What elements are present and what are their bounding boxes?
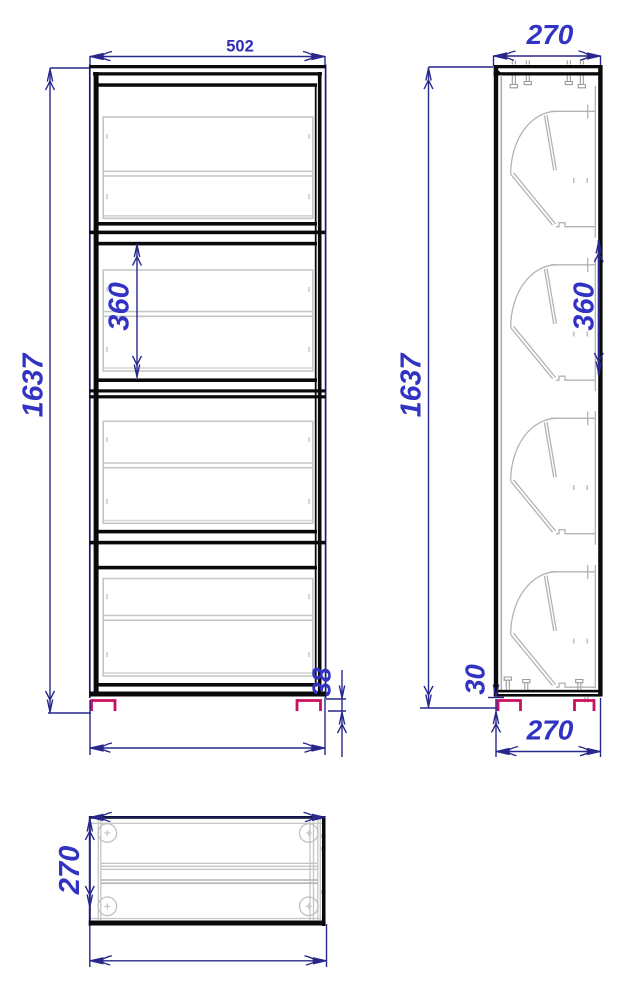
svg-text:270: 270: [54, 846, 86, 895]
svg-text:270: 270: [526, 19, 574, 50]
svg-text:360: 360: [569, 282, 601, 330]
svg-text:1637: 1637: [396, 353, 428, 418]
svg-text:270: 270: [526, 715, 574, 746]
svg-text:502: 502: [226, 38, 254, 56]
svg-text:30: 30: [460, 664, 491, 695]
svg-text:360: 360: [104, 282, 136, 330]
svg-text:1637: 1637: [18, 353, 50, 418]
svg-text:38: 38: [307, 667, 337, 696]
